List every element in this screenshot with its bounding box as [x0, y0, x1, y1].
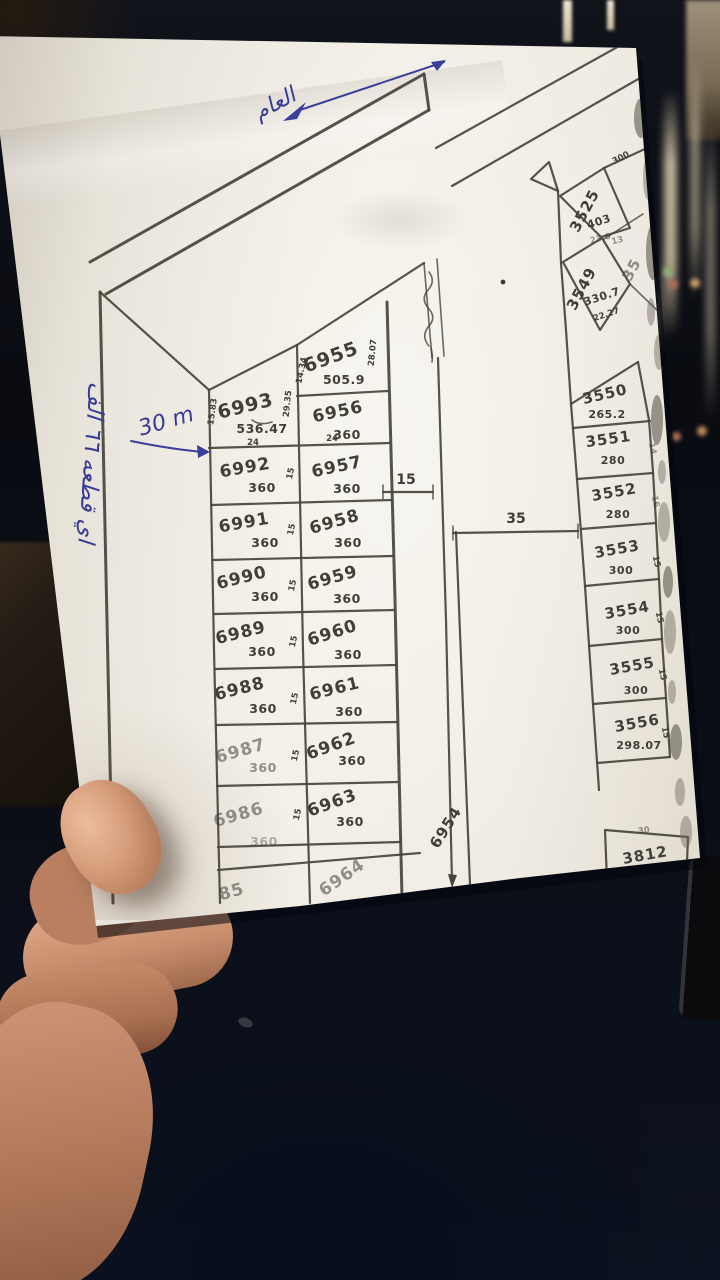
plot-6958-number: 6958: [307, 506, 362, 539]
plot-3553-number: 3553: [593, 536, 641, 562]
plot-6962-area: 360: [338, 753, 366, 768]
plot-6989-area: 360: [248, 644, 276, 659]
plot-6956-number: 6956: [311, 397, 365, 427]
bokeh-light: [690, 278, 700, 288]
plot-6990-area: 360: [251, 589, 279, 604]
edge-28-07: 28.07: [367, 339, 380, 367]
central-road-lines: [383, 259, 578, 888]
plot-6957-area: 360: [333, 481, 361, 496]
plot-3556-number: 3556: [613, 710, 661, 736]
row-width-15: 15: [286, 523, 298, 537]
plot-3555-area: 300: [624, 684, 648, 697]
west-column-a-labels: 6993 536.47 6992 360 6991 360 6990 360 6…: [211, 389, 287, 906]
side-edge-14: 14: [646, 442, 658, 456]
plot-6960-number: 6960: [305, 616, 360, 651]
edge-30: 30: [637, 825, 650, 836]
plot-6961-area: 360: [335, 704, 363, 719]
edge-29-35: 29.35: [282, 390, 295, 418]
ink-dot: [501, 280, 506, 285]
plot-partial-number: 35: [618, 255, 645, 284]
plot-3554-number: 3554: [603, 597, 651, 623]
plot-6959-number: 6959: [305, 562, 360, 595]
plot-6991-area: 360: [251, 535, 279, 550]
plot-6991-number: 6991: [217, 509, 271, 538]
plot-3551-number: 3551: [584, 427, 632, 451]
plot-3551-area: 280: [601, 454, 625, 467]
plot-6993-number: 6993: [215, 389, 276, 424]
plot-6955-area: 505.9: [323, 372, 365, 387]
west-column-b-labels: 6955 505.9 6956 360 6957 360 6958 360 69…: [300, 337, 368, 901]
plot-3552-area: 280: [606, 508, 630, 521]
plot-3553-area: 300: [609, 564, 633, 577]
plot-6959-area: 360: [333, 591, 361, 606]
plot-6985-partial-number: 85: [217, 879, 247, 905]
plot-3554-area: 300: [616, 624, 640, 637]
plot-6957-number: 6957: [310, 452, 364, 482]
blind-cord: [607, 0, 614, 30]
plot-6988-area: 360: [249, 701, 277, 716]
plot-3556-area: 298.07: [616, 739, 661, 752]
edge-23-6: 23.6: [589, 232, 612, 247]
side-width-15: 15: [653, 611, 665, 625]
row-width-15: 15: [287, 579, 299, 593]
bokeh-light: [672, 432, 681, 441]
side-width-15: 15: [659, 726, 671, 740]
edge-24-b: 24: [326, 434, 338, 444]
road-width-35: 35: [506, 511, 525, 527]
row-width-15: 15: [292, 808, 304, 822]
edge-300: 300: [611, 150, 631, 167]
north-plots-labels: 3525 403 3549 330.7 35 300 23.6 13 22.27: [563, 150, 645, 324]
side-width-15: 15: [656, 668, 668, 682]
bokeh-light: [697, 426, 707, 436]
arrowhead-icon: [197, 445, 210, 458]
bokeh-light: [669, 280, 678, 289]
plot-6963-area: 360: [336, 814, 364, 829]
row-width-15: 15: [289, 692, 301, 706]
plot-6992-area: 360: [248, 480, 276, 495]
plot-6961-number: 6961: [307, 673, 362, 705]
road-width-15: 15: [396, 472, 415, 488]
survey-flag-icon: [531, 162, 558, 191]
window-light-streak: [664, 88, 677, 338]
row-width-15: 15: [290, 749, 302, 763]
plot-6986-area: 360: [250, 834, 278, 849]
30m-arrow: [131, 441, 203, 452]
plot-6986-number: 6986: [211, 799, 266, 832]
plot-3550-area: 265.2: [588, 408, 625, 421]
plot-6992-number: 6992: [218, 454, 272, 483]
window-light-streak: [706, 120, 715, 420]
blind-cord: [563, 0, 572, 42]
plot-3552-number: 3552: [590, 479, 638, 505]
side-edge-16: 16: [649, 495, 661, 509]
plot-3550-number: 3550: [581, 380, 630, 408]
edge-13: 13: [611, 235, 625, 248]
handwritten-30m-note: 30 m: [136, 402, 197, 442]
plot-6987-area: 360: [249, 760, 277, 775]
plot-6993-area: 536.47: [236, 421, 287, 436]
row-width-15: 15: [288, 635, 300, 649]
plot-6960-area: 360: [334, 647, 362, 662]
window-light-streak: [690, 60, 700, 300]
edge-24-a: 24: [247, 438, 259, 448]
side-width-15: 15: [650, 555, 662, 569]
plot-3555-number: 3555: [608, 653, 656, 679]
road-strip-6954-number: 6954: [426, 803, 466, 851]
photo-of-plot-map: 6993 536.47 6992 360 6991 360 6990 360 6…: [0, 0, 720, 1280]
plot-6958-area: 360: [334, 535, 362, 550]
bokeh-light: [663, 267, 673, 277]
top-road-lines: [90, 40, 640, 294]
road-end-arrowhead: [448, 874, 457, 888]
row-width-15: 15: [285, 467, 297, 481]
